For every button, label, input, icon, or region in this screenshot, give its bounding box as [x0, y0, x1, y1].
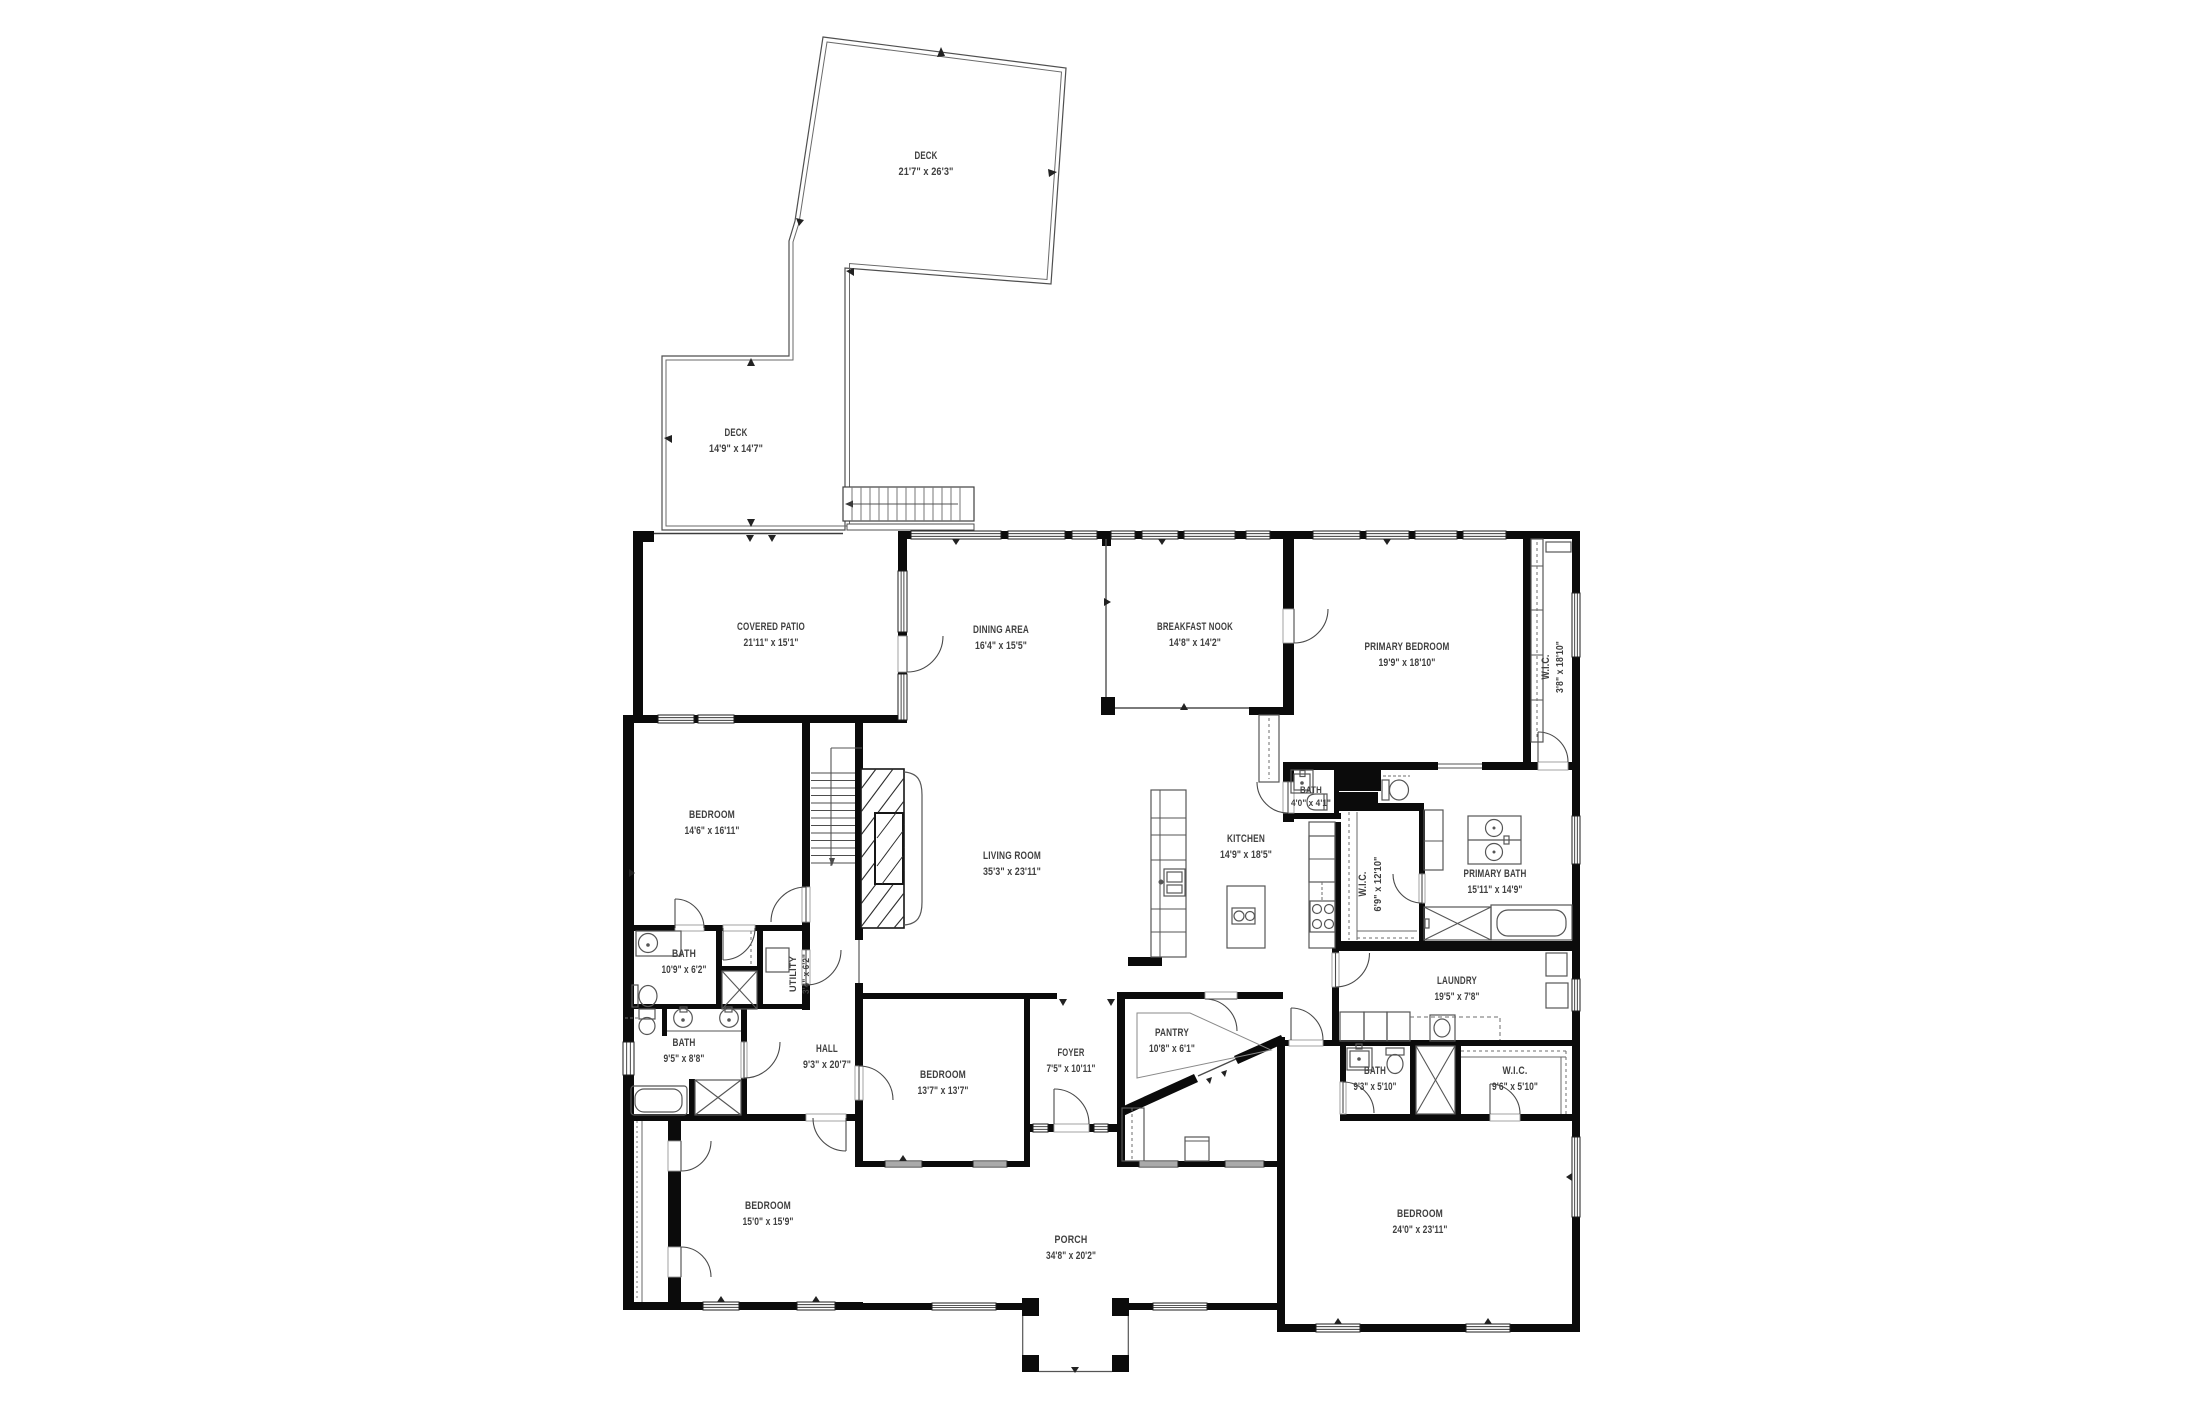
svg-text:HALL: HALL [816, 1043, 838, 1055]
svg-text:FOYER: FOYER [1058, 1047, 1085, 1059]
svg-text:KITCHEN: KITCHEN [1227, 833, 1265, 845]
svg-text:14'9" x 18'5": 14'9" x 18'5" [1220, 849, 1272, 861]
svg-text:BEDROOM: BEDROOM [689, 809, 735, 821]
svg-text:BATH: BATH [673, 1037, 696, 1049]
svg-text:35'3" x 23'11": 35'3" x 23'11" [983, 866, 1041, 878]
svg-text:PORCH: PORCH [1055, 1234, 1088, 1246]
svg-text:W.I.C.: W.I.C. [1503, 1065, 1528, 1077]
svg-text:BEDROOM: BEDROOM [920, 1069, 966, 1081]
svg-text:15'0" x 15'9": 15'0" x 15'9" [743, 1216, 794, 1228]
svg-text:BATH: BATH [1300, 785, 1322, 795]
svg-text:9'5" x 8'8": 9'5" x 8'8" [664, 1053, 705, 1065]
svg-text:9'6" x 5'10": 9'6" x 5'10" [1492, 1081, 1538, 1093]
svg-text:21'7" x 26'3": 21'7" x 26'3" [899, 166, 954, 178]
svg-text:DECK: DECK [725, 427, 748, 439]
svg-text:BEDROOM: BEDROOM [745, 1200, 791, 1212]
svg-text:9'3" x 5'10": 9'3" x 5'10" [1354, 1081, 1397, 1093]
svg-text:PRIMARY BATH: PRIMARY BATH [1464, 868, 1527, 880]
svg-text:BREAKFAST NOOK: BREAKFAST NOOK [1157, 621, 1233, 633]
svg-text:BATH: BATH [672, 948, 696, 960]
svg-text:LAUNDRY: LAUNDRY [1437, 975, 1477, 987]
svg-text:14'6" x 16'11": 14'6" x 16'11" [685, 825, 740, 837]
svg-text:7'5" x 10'11": 7'5" x 10'11" [1047, 1063, 1096, 1075]
svg-text:16'4" x 15'5": 16'4" x 15'5" [975, 640, 1027, 652]
svg-text:3'8" x 18'10": 3'8" x 18'10" [1555, 641, 1566, 693]
svg-text:24'0" x 23'11": 24'0" x 23'11" [1393, 1224, 1448, 1236]
svg-text:13'7" x 13'7": 13'7" x 13'7" [918, 1085, 969, 1097]
svg-text:W.I.C.: W.I.C. [1357, 872, 1369, 897]
svg-text:LIVING ROOM: LIVING ROOM [983, 850, 1041, 862]
svg-text:W.I.C.: W.I.C. [1540, 655, 1552, 680]
svg-text:10'8" x 6'1": 10'8" x 6'1" [1149, 1043, 1195, 1055]
svg-text:UTILITY: UTILITY [787, 956, 798, 992]
svg-text:4'0" x 4'1": 4'0" x 4'1" [1291, 798, 1331, 808]
svg-text:PRIMARY BEDROOM: PRIMARY BEDROOM [1365, 641, 1450, 653]
svg-text:COVERED PATIO: COVERED PATIO [737, 621, 805, 633]
svg-text:DECK: DECK [915, 150, 938, 162]
svg-text:BEDROOM: BEDROOM [1397, 1208, 1443, 1220]
svg-text:9'3" x 20'7": 9'3" x 20'7" [803, 1059, 851, 1071]
svg-text:DINING AREA: DINING AREA [973, 624, 1029, 636]
svg-text:19'5" x 7'8": 19'5" x 7'8" [1435, 991, 1480, 1003]
svg-text:19'9" x 18'10": 19'9" x 18'10" [1379, 657, 1436, 669]
svg-text:10'9" x 6'2": 10'9" x 6'2" [662, 964, 707, 976]
svg-text:BATH: BATH [1364, 1065, 1386, 1077]
svg-text:21'11" x 15'1": 21'11" x 15'1" [744, 637, 799, 649]
svg-text:14'8" x 14'2": 14'8" x 14'2" [1169, 637, 1221, 649]
svg-text:PANTRY: PANTRY [1155, 1027, 1189, 1039]
svg-text:14'9" x 14'7": 14'9" x 14'7" [709, 443, 763, 455]
svg-text:34'8" x 20'2": 34'8" x 20'2" [1046, 1250, 1096, 1262]
svg-text:3'4" x 6'2": 3'4" x 6'2" [801, 954, 811, 994]
svg-text:6'9" x 12'10": 6'9" x 12'10" [1373, 856, 1384, 911]
svg-text:15'11" x 14'9": 15'11" x 14'9" [1468, 884, 1523, 896]
